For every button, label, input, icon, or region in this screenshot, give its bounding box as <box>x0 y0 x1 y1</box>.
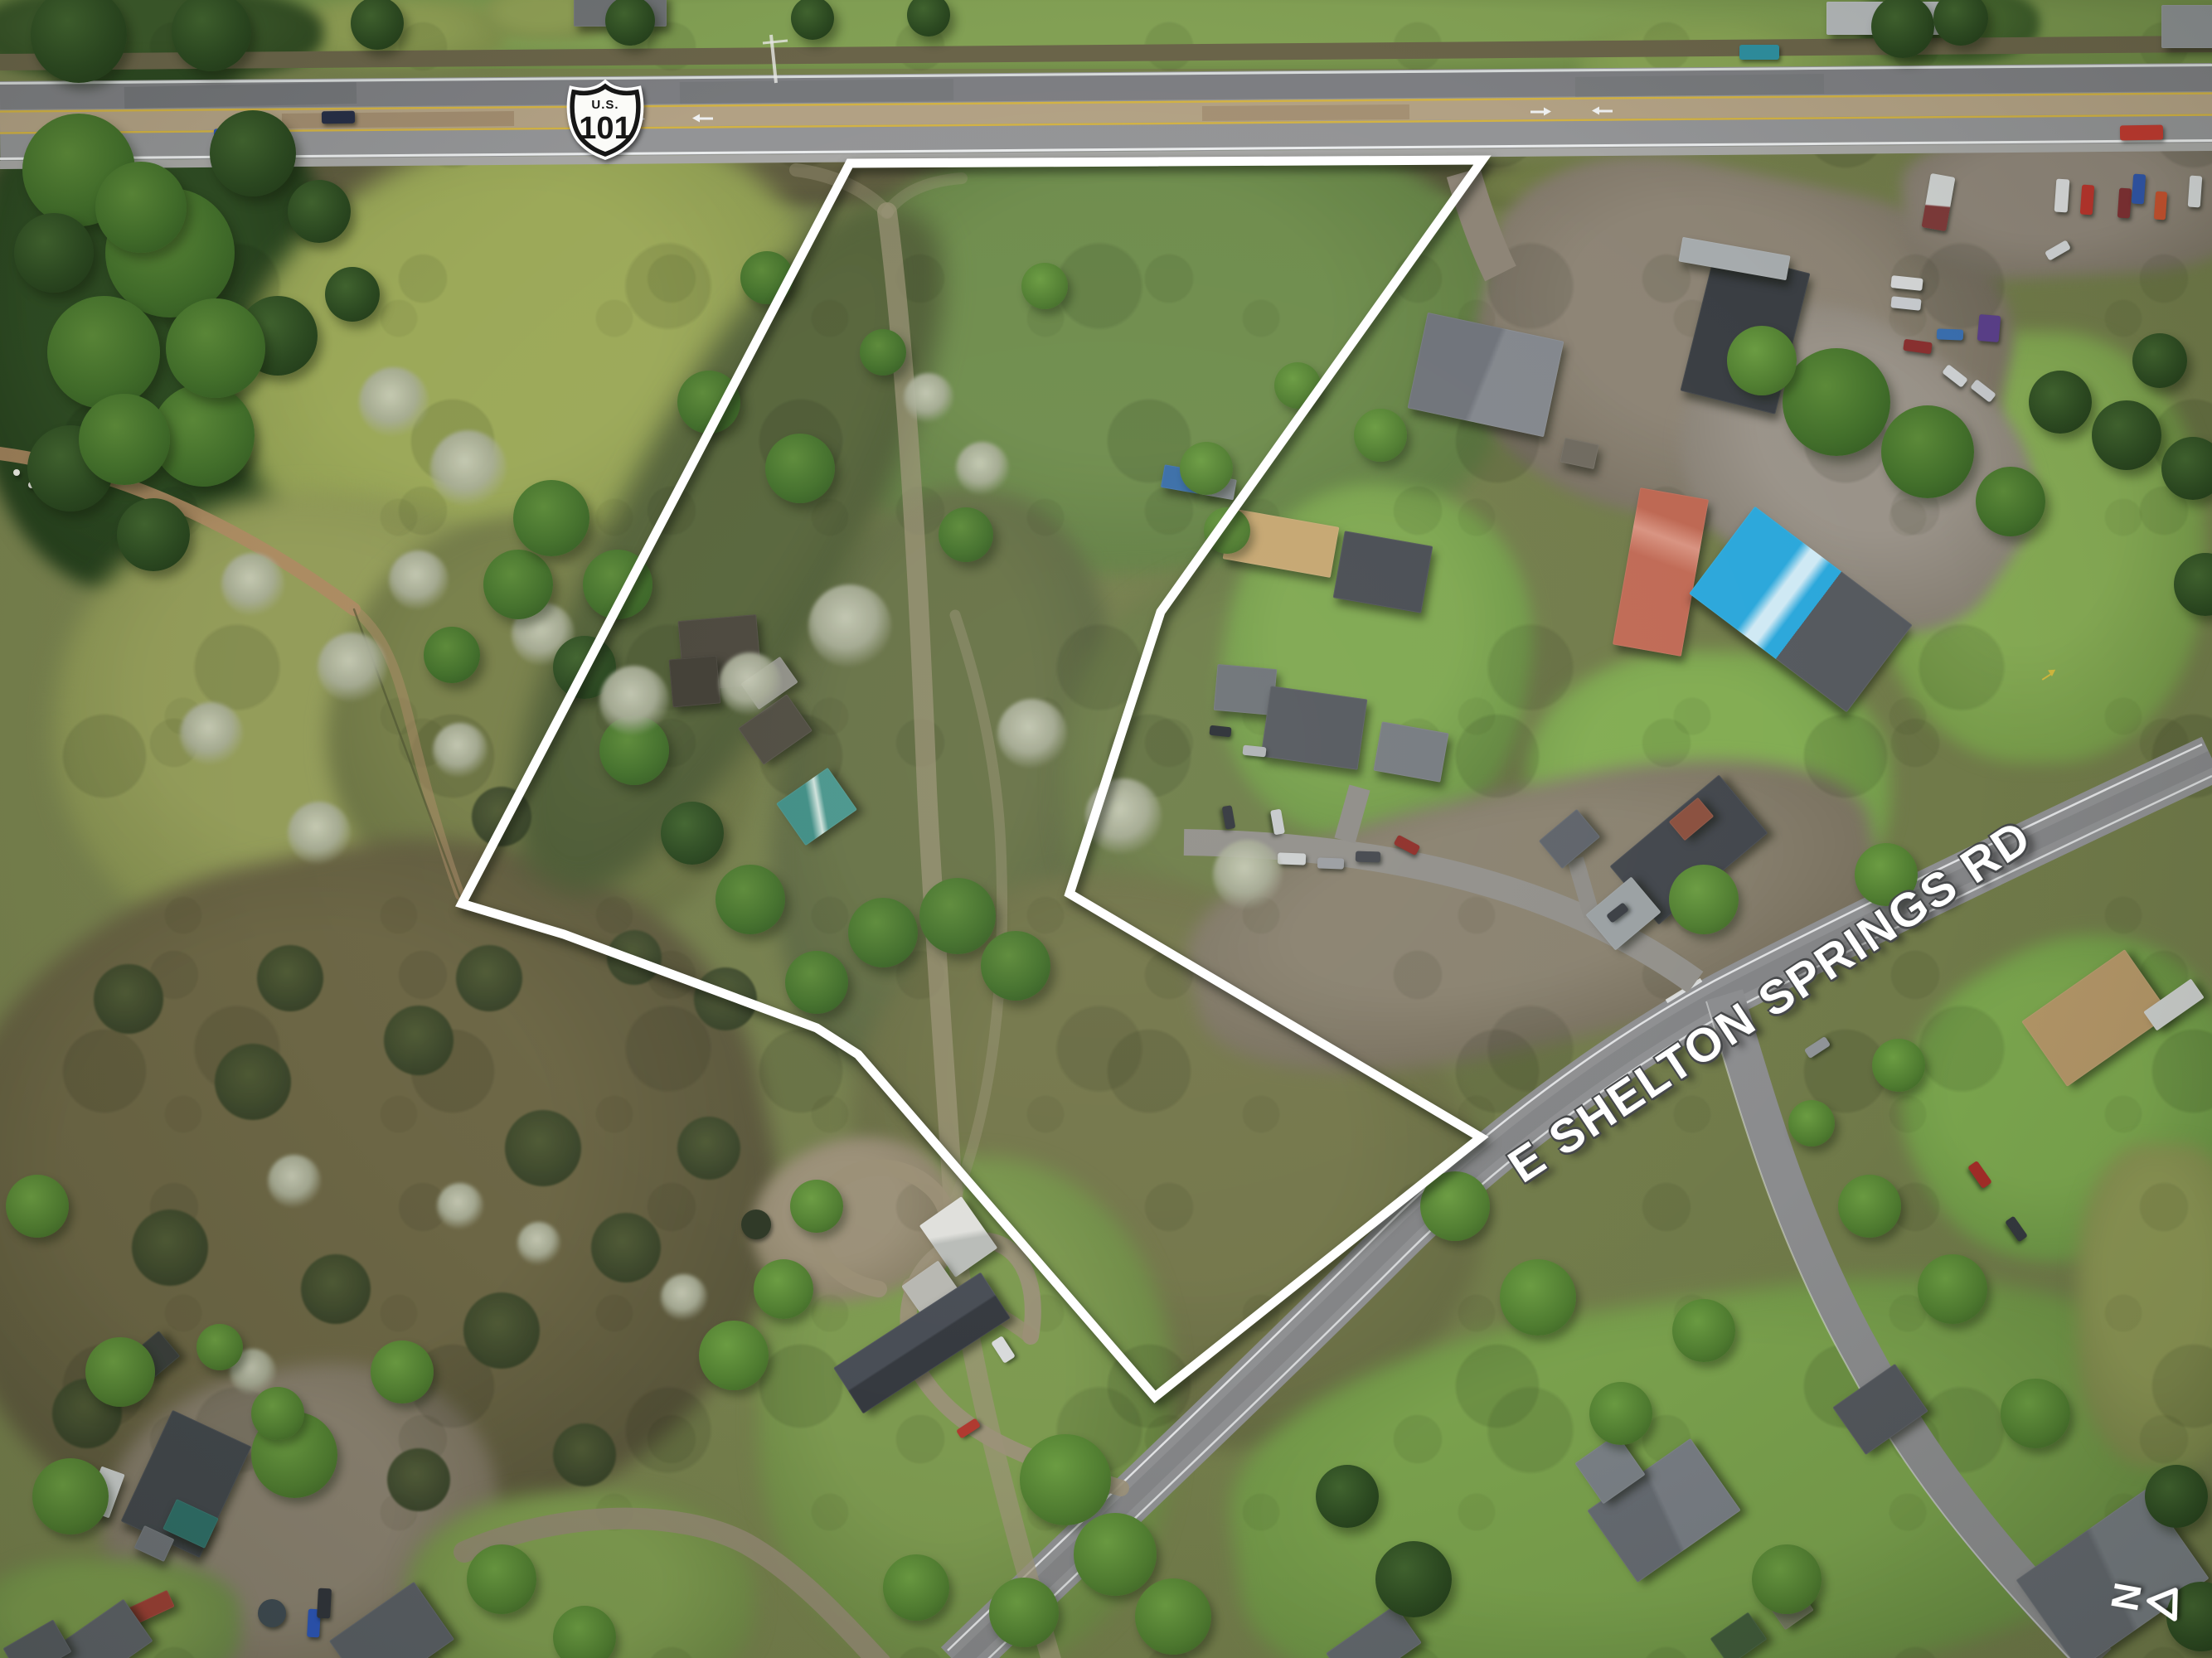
north-letter: N <box>2103 1579 2150 1614</box>
shield-us-label: U.S. <box>591 98 618 112</box>
shield-route-number: 101 <box>579 111 631 146</box>
north-arrow-icon: N <box>2103 1578 2180 1619</box>
north-triangle <box>2147 1586 2179 1618</box>
us-101-highway-shield-icon: U.S. 101 <box>572 86 638 154</box>
aerial-photo: U.S. 101 N E SHELTON SPRINGS RD <box>0 0 2212 1658</box>
property-boundary-outline <box>462 160 1482 1397</box>
annotation-layer: U.S. 101 N <box>0 0 2212 1658</box>
